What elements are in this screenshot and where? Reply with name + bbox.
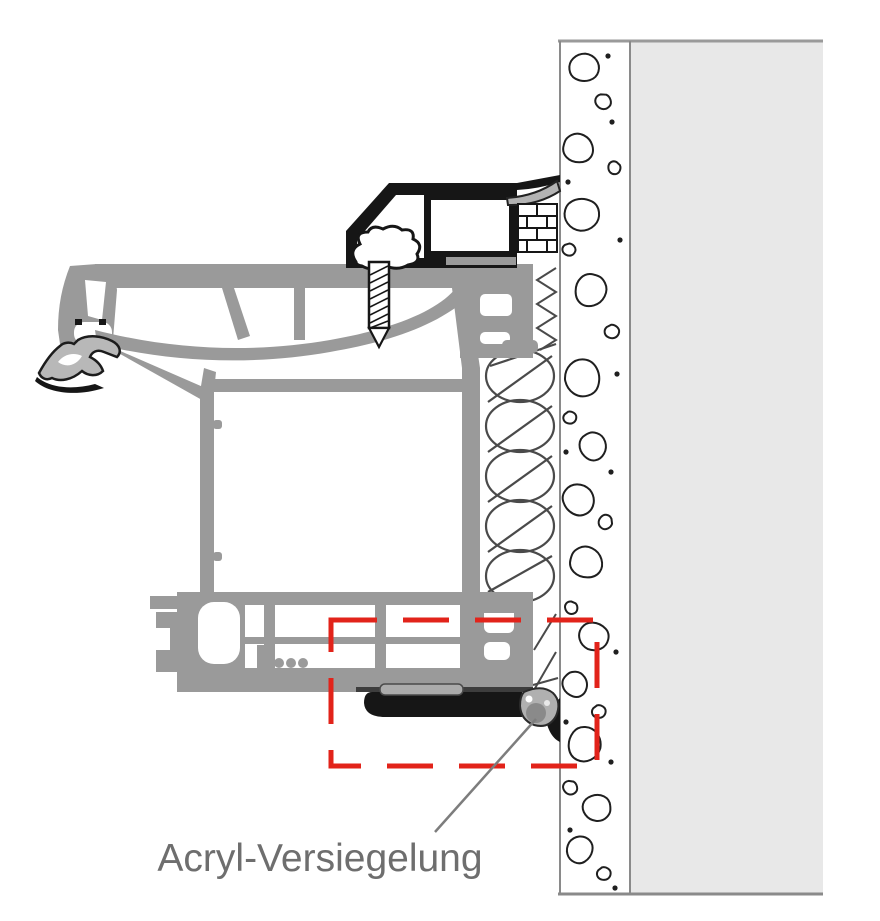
bottom-vweb-2 <box>375 605 386 668</box>
wall-section <box>557 40 823 895</box>
window-installation-diagram: Acryl-Versiegelung <box>0 0 880 921</box>
gasket-clip-right <box>99 319 106 325</box>
masonry-hatch <box>518 204 557 252</box>
wall-masonry-fill <box>630 40 823 895</box>
bottom-bump-3 <box>298 658 308 668</box>
anchor-plate-upper <box>514 286 528 342</box>
bottom-notch <box>257 645 267 670</box>
right-bottom-chamber-2 <box>484 642 510 660</box>
bottom-hweb-2 <box>240 637 462 644</box>
acrylic-seal <box>520 688 560 742</box>
seal-gleam-2 <box>544 700 550 706</box>
left-end-protrusion <box>150 596 178 609</box>
seal-label: Acryl-Versiegelung <box>157 837 482 880</box>
insulation-zigzag-bottom <box>533 614 558 690</box>
left-bar-nub-lower <box>213 552 222 561</box>
frame-vertical-web-top <box>294 288 305 340</box>
anchor-foot-upper <box>502 340 538 353</box>
mounting-screw <box>369 262 389 347</box>
insulation-wool-coils <box>486 344 556 602</box>
left-bar-nub-upper <box>213 420 222 429</box>
pointer-line <box>435 719 536 832</box>
round-chamber <box>198 602 240 664</box>
sill-insert <box>380 684 463 695</box>
window-sill <box>356 684 533 717</box>
bottom-bump-1 <box>274 658 284 668</box>
gasket-clip-left <box>75 319 82 325</box>
insulation-zigzag-top <box>537 268 556 350</box>
left-end-notch <box>156 628 170 650</box>
frame-sweep-web <box>95 288 468 360</box>
window-frame-profile <box>58 264 538 692</box>
right-top-chamber-1 <box>480 294 512 316</box>
bottom-bump-2 <box>286 658 296 668</box>
mounting-profile-sliver <box>446 257 516 265</box>
anchor-arm-lower <box>478 600 522 613</box>
frame-mid-horizontal-web <box>212 379 464 392</box>
frame-diagonal-web <box>222 288 250 340</box>
diagram-canvas: Acryl-Versiegelung <box>0 0 880 921</box>
rubber-gasket <box>35 336 120 393</box>
anchor-arm-upper <box>478 316 516 330</box>
seal-gleam-1 <box>526 696 533 703</box>
mounting-profile-cavity-box <box>431 200 509 251</box>
